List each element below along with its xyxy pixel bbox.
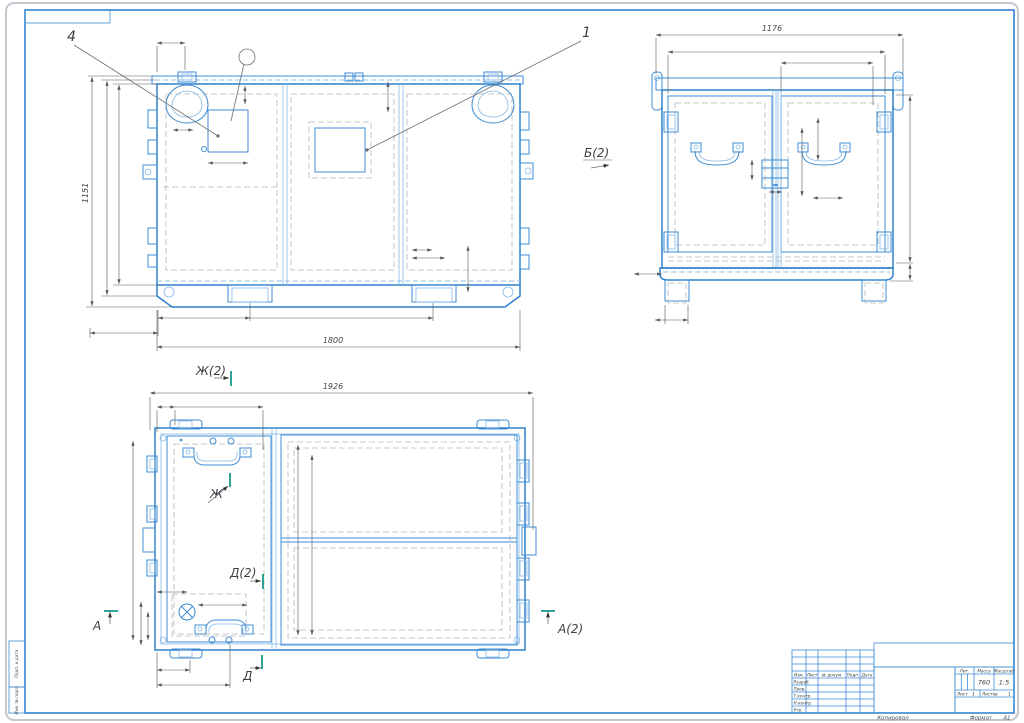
dim-front-width: 1800 (323, 336, 343, 345)
drawing-sheet: Подп. и дата Инв. № подл. (0, 0, 1024, 723)
dim-front-height: 1151 (81, 183, 90, 203)
side-dimensions: 1176 (634, 24, 913, 324)
margin-columns: Подп. и дата Инв. № подл. (9, 641, 25, 714)
col-izm: Изм. (794, 673, 804, 678)
door-handle (798, 143, 850, 165)
plan-left-door (167, 436, 271, 642)
section-d-text: Д (242, 669, 252, 683)
callout-1-label: 1 (582, 25, 591, 41)
row-prov: Пров. (794, 687, 806, 692)
front-dimensions: 1151 1800 (81, 43, 520, 351)
designation-cell (874, 643, 1014, 667)
format-label: Формат (970, 716, 993, 722)
scale-label: Масштаб (994, 668, 1014, 673)
lit-label: Лит. (959, 668, 970, 673)
sheet-value: 1 (972, 692, 975, 697)
section-label-d: Д (242, 655, 262, 683)
plan-twistlock (179, 604, 195, 620)
revision-header: Изм. Лист № докум. Подп. Дата (794, 673, 873, 678)
vent-grille (309, 122, 371, 178)
section-zh-text: Ж (209, 487, 224, 501)
front-right-fittings (520, 112, 533, 269)
margin-cell-label: Подп. и дата (14, 649, 19, 678)
row-tkontr: Т.контр. (794, 694, 812, 699)
col-dokum: № докум. (821, 673, 843, 678)
center-latch (762, 160, 788, 188)
front-view: 1151 1800 4 1 (67, 25, 591, 351)
plan-handle-bottom (195, 620, 253, 634)
side-base (660, 268, 893, 303)
eye-plate (170, 420, 509, 658)
section-label-zh2: Ж(2) (195, 364, 231, 386)
row-utv: Утв. (794, 708, 803, 713)
front-left-fittings (143, 110, 157, 267)
balloon-circle (239, 49, 255, 65)
sheet-label: Лист (956, 692, 968, 697)
corner-stamp-box (25, 10, 110, 23)
signature-rows: Разраб. Пров. Т.контр. Н.контр. Утв. (794, 680, 813, 713)
sheets-value: 1 (1008, 692, 1011, 697)
hatch-opening (208, 110, 248, 152)
view-label-b2-text: Б(2) (584, 146, 609, 160)
mass-label: Масса (977, 668, 991, 673)
format-value: А1 (1002, 716, 1010, 722)
margin-cell-label: Инв. № подл. (14, 686, 19, 715)
cad-drawing: Подп. и дата Инв. № подл. (0, 0, 1024, 723)
section-label-a: А (92, 611, 118, 633)
view-label-b2: Б(2) (583, 146, 612, 168)
scale-value: 1:5 (999, 679, 1009, 687)
title-block: Изм. Лист № докум. Подп. Дата Разраб. Пр… (792, 643, 1014, 713)
mass-value: 760 (978, 679, 990, 687)
section-a-text: А (92, 619, 101, 633)
section-a2-text: А(2) (557, 622, 583, 636)
dim-side-width: 1176 (762, 24, 782, 33)
col-list: Лист (806, 673, 818, 678)
name-cell (874, 667, 955, 713)
section-label-zh: Ж (208, 473, 230, 503)
sheets-label: Листов (981, 692, 998, 697)
forklift-pocket (228, 285, 272, 302)
side-body (662, 90, 893, 268)
copy-stamp: Копировал (877, 716, 909, 722)
section-d2-text: Д(2) (229, 566, 256, 580)
section-label-d2: Д(2) (229, 566, 263, 589)
row-nkontr: Н.контр. (794, 701, 813, 706)
side-door-left (668, 96, 772, 252)
side-door-right (781, 96, 885, 252)
section-zh2-text: Ж(2) (195, 364, 226, 378)
side-roof (656, 78, 903, 90)
side-view: 1176 Б(2) (583, 24, 913, 324)
plan-handle-top (183, 448, 251, 465)
row-razrab: Разраб. (794, 680, 810, 685)
col-data: Дата (861, 673, 873, 678)
dim-plan-width: 1926 (323, 382, 343, 391)
front-body (157, 84, 520, 285)
hatch-bolt (202, 147, 207, 152)
section-label-a2: А(2) (541, 611, 583, 636)
col-podp: Подп. (847, 673, 860, 678)
right-block-text: Лит. Масса Масштаб 760 1:5 Лист 1 Листов… (956, 668, 1014, 696)
plan-latch (522, 527, 536, 555)
plan-view: 1926 Ж(2) Ж Д(2) Д А (92, 364, 583, 688)
door-handle (691, 143, 743, 165)
callout-4-label: 4 (67, 29, 76, 45)
plan-right-lid (281, 435, 517, 645)
forklift-pocket (412, 285, 456, 302)
